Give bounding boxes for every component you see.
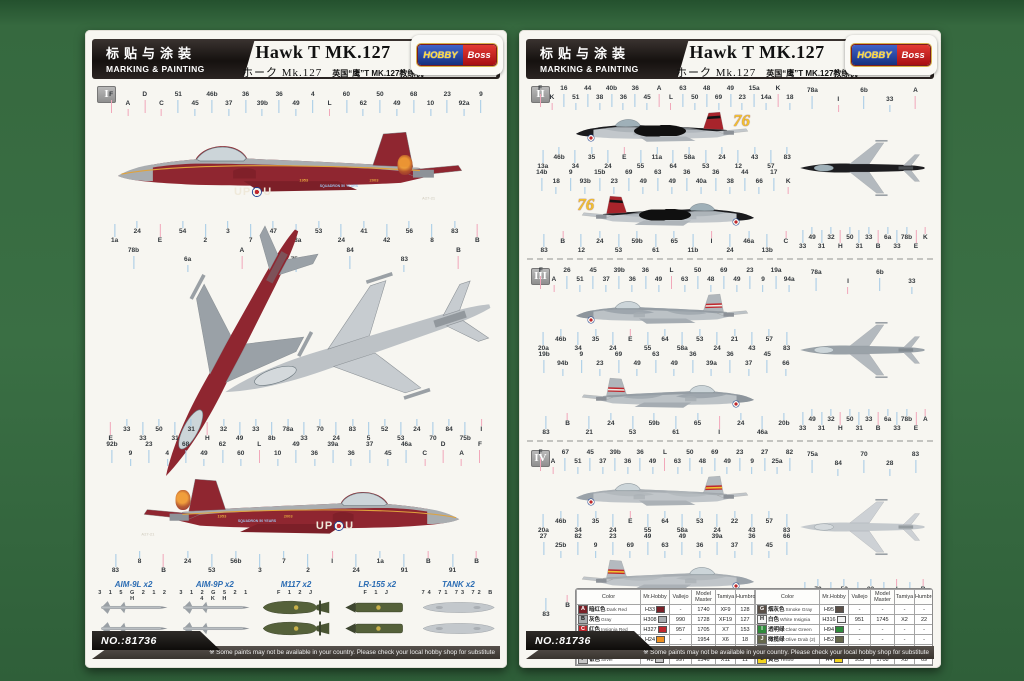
callout-61: 61: [652, 234, 659, 255]
callouts-bottom: E3333503131H3249338b78a33702483552532470…: [101, 418, 491, 442]
callout-36: 36: [726, 352, 733, 373]
callout-39a: 39a: [712, 534, 723, 555]
callout-60: 60: [237, 451, 244, 466]
panther-art: [634, 125, 686, 138]
callout-F: F: [539, 268, 543, 289]
callout-83: 83: [112, 554, 119, 575]
callout-49: 49: [727, 86, 734, 107]
callout-45: 45: [589, 268, 596, 289]
callout-13a: 13a: [537, 150, 548, 171]
callout-13b: 13b: [762, 234, 773, 255]
callout-64: 64: [661, 329, 668, 344]
aircraft-side-profile: [101, 468, 491, 556]
callout-I: I: [331, 551, 333, 566]
callout-46b: 46b: [553, 147, 564, 162]
callout-63: 63: [654, 170, 661, 191]
callout-63: 63: [652, 352, 659, 373]
weapon-group: TANK x2 74 71 73 72 B: [418, 580, 499, 646]
color-row: B灰色Gray H308 990 1728 XF19 127: [577, 615, 755, 625]
logo-hobby-text: HOBBY: [418, 45, 462, 65]
callout-A: A: [126, 101, 131, 116]
callout-50: 50: [694, 268, 701, 289]
callout-F: F: [478, 442, 482, 463]
callout-24: 24: [333, 422, 340, 443]
callout-16: 16: [560, 86, 567, 107]
callout-35: 35: [592, 511, 599, 526]
callout-4: 4: [165, 451, 169, 466]
callout-24: 24: [609, 514, 616, 535]
callout-B: B: [565, 595, 570, 610]
callout-34: 34: [572, 150, 579, 171]
kit-number-banner: NO.:81736: [92, 631, 220, 650]
callout-64: 64: [670, 150, 677, 171]
callout-46a: 46a: [401, 442, 412, 463]
callout-F: F: [538, 86, 542, 107]
callout-69: 69: [711, 450, 718, 471]
callout-49: 49: [393, 101, 400, 116]
callout-L: L: [257, 442, 261, 463]
callout-83: 83: [542, 598, 549, 619]
callout-24: 24: [609, 332, 616, 353]
callout-82: 82: [786, 450, 793, 471]
kit-subtitle-cn: 英国“鹰”T MK.127教练机: [766, 69, 857, 78]
callout-37: 37: [225, 101, 232, 116]
callout-14b: 14b: [536, 170, 547, 191]
callout-E: E: [628, 329, 632, 344]
scheme2-plan-view: 78aI6b33A 33493132H503133B6a3378bEK: [797, 88, 931, 250]
section-divider: [527, 258, 933, 260]
scheme1-side-view-port: 92b923468496260L10493639a36374546aCDAF U…: [101, 442, 491, 574]
callout-23: 23: [746, 268, 753, 289]
callout-5: 5: [367, 422, 371, 443]
callouts-bottom: 838B245356b372I241a91B91B: [101, 550, 491, 574]
callout-23: 23: [145, 442, 152, 463]
callout-A: A: [923, 409, 928, 424]
weapon-group: LR-155 x2 F 1 J: [337, 580, 418, 646]
marking-year-1953: 1953: [217, 513, 226, 518]
callout-36: 36: [689, 352, 696, 373]
col-humbrol: Humbrol: [736, 590, 755, 605]
callout-69: 69: [720, 268, 727, 289]
callout-57: 57: [767, 150, 774, 171]
tail-number-76: 76: [733, 111, 750, 131]
callout-54: 54: [179, 221, 186, 236]
marking-serial: A27-21: [422, 196, 435, 201]
footer-note: ※ Some paints may not be available in yo…: [643, 649, 934, 656]
callout-33: 33: [123, 419, 130, 434]
callout-36: 36: [642, 268, 649, 289]
callout-70: 70: [317, 419, 324, 434]
kit-number-banner: NO.:81736: [526, 631, 654, 650]
color-letter-chip: J: [757, 635, 767, 644]
callout-24: 24: [134, 221, 141, 236]
color-row: J橄榄绿Olive Drab (2) H52 - - - -: [756, 635, 934, 645]
marking-year-2003: 2003: [370, 178, 379, 183]
kit-subtitle-cn: 英国“鹰”T MK.127教练机: [332, 69, 423, 78]
callout-50: 50: [846, 409, 853, 424]
scheme2-side-port: 14b18993b15b23694963493640a3638446617K 7…: [533, 170, 797, 254]
kit-title: Hawk T MK.127: [676, 42, 838, 63]
callout-C: C: [783, 231, 788, 246]
callout-49: 49: [644, 534, 651, 555]
weapon-callouts: F 1 J: [337, 590, 418, 597]
callout-36: 36: [311, 451, 318, 466]
callout-D: D: [441, 442, 446, 463]
col-modelmaster: Model Master: [692, 590, 716, 605]
callout-52: 52: [381, 419, 388, 434]
color-row: G烟灰色Smoke Gray H95 - - - -: [756, 605, 934, 615]
hobbyboss-logo: HOBBY Boss: [845, 35, 937, 75]
callout-50: 50: [376, 92, 383, 113]
callout-56: 56: [406, 221, 413, 236]
callouts-top: FADC514546b373639b36494L6062504968102392…: [101, 92, 491, 118]
scheme3-side-starboard: FA2651453739b363649L635048694923919a94a …: [533, 268, 797, 352]
callout-44: 44: [741, 170, 748, 191]
callout-23: 23: [609, 534, 616, 555]
callout-D: D: [142, 92, 147, 113]
weapon-figure: [337, 597, 418, 641]
callout-62: 62: [360, 101, 367, 116]
callout-1a: 1a: [111, 224, 118, 245]
callout-9: 9: [479, 92, 483, 113]
callout-50: 50: [686, 450, 693, 471]
callout-41: 41: [360, 221, 367, 236]
callout-92b: 92b: [106, 442, 117, 463]
callout-B: B: [161, 554, 166, 575]
callout-64: 64: [661, 511, 668, 526]
sheet-page-1: 标贴与涂装 MARKING & PAINTING Hawk T MK.127 ホ…: [85, 30, 507, 668]
callout-33: 33: [252, 419, 259, 434]
callout-31: 31: [818, 412, 825, 433]
callout-36: 36: [348, 451, 355, 466]
callout-L: L: [663, 450, 667, 471]
callout-33: 33: [865, 409, 872, 424]
callout-59b: 59b: [632, 231, 643, 246]
section-divider: [527, 440, 933, 442]
callout-83: 83: [541, 234, 548, 255]
color-row: I透明绿Clear Green H94 - - - -: [756, 625, 934, 635]
callout-55: 55: [644, 332, 651, 353]
callout-46a: 46a: [757, 416, 768, 437]
callout-49: 49: [808, 409, 815, 424]
callout-50: 50: [155, 419, 162, 434]
callout-49: 49: [292, 101, 299, 116]
callout-33: 33: [865, 227, 872, 242]
callout-33: 33: [893, 412, 900, 433]
callout-36: 36: [712, 170, 719, 191]
callout-10: 10: [427, 101, 434, 116]
callout-78b: 78b: [128, 248, 139, 269]
callout-46b: 46b: [206, 92, 217, 113]
callout-21: 21: [586, 416, 593, 437]
callout-53: 53: [397, 422, 404, 443]
callout-91: 91: [401, 554, 408, 575]
callout-36: 36: [276, 92, 283, 113]
callout-34: 34: [575, 332, 582, 353]
callout-49: 49: [679, 534, 686, 555]
callout-39b: 39b: [614, 268, 625, 289]
header-cn-title: 标贴与涂装: [106, 43, 205, 62]
callout-48: 48: [703, 86, 710, 107]
raaf-roundel: [588, 499, 595, 506]
callout-27: 27: [761, 450, 768, 471]
callout-78a: 78a: [283, 419, 294, 434]
callout-L: L: [670, 268, 674, 289]
callout-45: 45: [587, 450, 594, 471]
col-mrhobby: Mr.Hobby: [641, 590, 670, 605]
marking-serial: A27-21: [141, 532, 154, 537]
color-row: H白色White Insignia H316 951 1745 X2 22: [756, 615, 934, 625]
callout-31: 31: [856, 412, 863, 433]
callout-39b: 39b: [257, 101, 268, 116]
callout-A: A: [657, 86, 662, 107]
weapon-label: AIM-9L x2: [93, 580, 174, 589]
callout-E: E: [158, 224, 162, 245]
header-en-title: MARKING & PAINTING: [106, 64, 205, 74]
callout-49: 49: [292, 442, 299, 463]
callout-49: 49: [808, 227, 815, 242]
callout-65: 65: [694, 413, 701, 428]
scan-background: { "doc": { "kit_no": "NO.:81736", "foote…: [0, 0, 1024, 681]
callout-B: B: [474, 551, 479, 566]
color-letter-chip: B: [578, 615, 588, 624]
logo-hobby-text: HOBBY: [852, 45, 896, 65]
col-tamiya: Tamiya: [716, 590, 736, 605]
callout-91: 91: [449, 554, 456, 575]
callout-84: 84: [445, 419, 452, 434]
callout-32: 32: [827, 409, 834, 424]
callout-B: B: [565, 413, 570, 428]
callout-83: 83: [783, 332, 790, 353]
callout-7: 7: [282, 551, 286, 566]
callout-78b: 78b: [901, 227, 912, 242]
callout-69: 69: [615, 352, 622, 373]
callout-53: 53: [615, 234, 622, 255]
callout-I: I: [718, 416, 720, 437]
callout-F: F: [538, 450, 542, 471]
callout-K: K: [776, 86, 781, 107]
callout-49: 49: [200, 451, 207, 466]
callout-24: 24: [713, 514, 720, 535]
callout-57: 57: [766, 511, 773, 526]
aircraft-side-profile: [101, 120, 491, 216]
callout-36: 36: [748, 534, 755, 555]
callout-42: 42: [383, 224, 390, 245]
callout-12: 12: [578, 234, 585, 255]
callout-C: C: [159, 101, 164, 116]
callout-23: 23: [736, 450, 743, 471]
callout-53: 53: [696, 329, 703, 344]
callout-15a: 15a: [749, 86, 760, 107]
callout-62: 62: [219, 442, 226, 463]
callout-17: 17: [770, 170, 777, 191]
callout-59b: 59b: [649, 413, 660, 428]
callout-37: 37: [366, 442, 373, 463]
callout-68: 68: [410, 92, 417, 113]
weapon-label: TANK x2: [418, 580, 499, 589]
scheme3-plan-view: 78aI6b33 33493132H503133B6a3378bEA: [797, 270, 931, 432]
callout-11a: 11a: [652, 147, 663, 162]
callout-E: E: [622, 147, 626, 162]
weapon-label: M117 x2: [255, 580, 336, 589]
callout-33: 33: [300, 422, 307, 443]
callouts-top: 92b923468496260L10493639a36374546aCDAF: [101, 442, 491, 468]
color-letter-chip: I: [757, 625, 767, 634]
raaf-roundel: [733, 401, 740, 408]
callout-36: 36: [242, 92, 249, 113]
callout-40b: 40b: [606, 86, 617, 107]
callout-23: 23: [444, 92, 451, 113]
callout-46b: 46b: [555, 329, 566, 344]
callout-31: 31: [818, 230, 825, 251]
color-letter-chip: A: [578, 605, 588, 614]
callout-19a: 19a: [771, 268, 782, 289]
callout-C: C: [422, 451, 427, 466]
callout-24: 24: [604, 150, 611, 171]
tail-scorpion-art: [398, 155, 413, 175]
callout-68: 68: [182, 442, 189, 463]
callout-11b: 11b: [687, 234, 698, 255]
callout-24: 24: [713, 332, 720, 353]
scheme4-plan-view: 75a84702883 24705352248384I75bB: [797, 452, 931, 602]
callout-36: 36: [683, 170, 690, 191]
kit-subtitle-jp: ホーク Mk.127: [242, 67, 322, 79]
callout-B: B: [426, 551, 431, 566]
callout-32: 32: [220, 419, 227, 434]
callout-8b: 8b: [268, 422, 276, 443]
callout-51: 51: [175, 92, 182, 113]
col-color: Color: [577, 590, 641, 605]
header-cn-title: 标贴与涂装: [540, 43, 639, 62]
callout-21: 21: [731, 329, 738, 344]
marking-year-1953: 1953: [299, 178, 308, 183]
callout-15b: 15b: [594, 170, 605, 191]
callout-45: 45: [764, 352, 771, 373]
scheme4-side-starboard: FA6751453739b363649L63504869492392725a82…: [533, 450, 797, 534]
callout-39b: 39b: [610, 450, 621, 471]
callout-E: E: [914, 412, 918, 433]
callout-83: 83: [783, 514, 790, 535]
callout-39a: 39a: [327, 442, 338, 463]
callout-E: E: [628, 511, 632, 526]
callout-3: 3: [258, 554, 262, 575]
callout-36: 36: [636, 450, 643, 471]
callout-35: 35: [592, 329, 599, 344]
callout-6a: 6a: [884, 227, 891, 242]
callout-E: E: [914, 230, 918, 251]
callout-83: 83: [542, 416, 549, 437]
callout-B: B: [560, 231, 565, 246]
callout-6a: 6a: [884, 409, 891, 424]
callout-E: E: [108, 422, 112, 443]
scheme3-side-port: 19b94b923694963493639a36374566 83B212453…: [533, 352, 797, 436]
callout-34: 34: [575, 514, 582, 535]
callout-24: 24: [718, 147, 725, 162]
callout-20a: 20a: [538, 332, 549, 353]
callout-44: 44: [584, 86, 591, 107]
scheme2-side-starboard: FK1651443840b363645AL63504869492315a14aK…: [533, 86, 797, 170]
header-en-title: MARKING & PAINTING: [540, 64, 639, 74]
callout-B: B: [876, 412, 881, 433]
callout-H: H: [838, 230, 843, 251]
callout-24: 24: [607, 413, 614, 428]
weapon-figure: [255, 597, 336, 641]
callout-20a: 20a: [538, 514, 549, 535]
callout-24: 24: [737, 413, 744, 428]
callout-53: 53: [696, 511, 703, 526]
tail-scorpion-art: [175, 490, 190, 510]
callout-46a: 46a: [743, 231, 754, 246]
callout-36: 36: [632, 86, 639, 107]
callout-53: 53: [702, 150, 709, 171]
callout-24: 24: [726, 234, 733, 255]
callout-2: 2: [306, 554, 310, 575]
callout-H: H: [838, 412, 843, 433]
callout-50: 50: [846, 227, 853, 242]
callout-61: 61: [672, 416, 679, 437]
callout-1a: 1a: [377, 551, 384, 566]
callout-92a: 92a: [459, 101, 470, 116]
kit-subtitle: ホーク Mk.127英国“鹰”T MK.127教练机: [242, 64, 404, 80]
callout-56b: 56b: [230, 551, 241, 566]
callout-58a: 58a: [684, 147, 695, 162]
callout-19b: 19b: [539, 352, 550, 373]
callout-A: A: [459, 451, 464, 466]
kit-subtitle-jp: ホーク Mk.127: [676, 67, 756, 79]
callout-66: 66: [783, 534, 790, 555]
callout-I: I: [480, 419, 482, 434]
callout-57: 57: [766, 329, 773, 344]
callout-53: 53: [208, 554, 215, 575]
callout-31: 31: [172, 422, 179, 443]
callout-82: 82: [575, 534, 582, 555]
callout-K: K: [923, 227, 928, 242]
callout-32: 32: [827, 227, 834, 242]
weapon-label: AIM-9P x2: [174, 580, 255, 589]
weapon-group: M117 x2 F 1 2 J: [255, 580, 336, 646]
callout-31: 31: [856, 230, 863, 251]
callout-8: 8: [138, 551, 142, 566]
page1-header: 标贴与涂装 MARKING & PAINTING Hawk T MK.127 ホ…: [92, 39, 500, 79]
callout-B: B: [876, 230, 881, 251]
raaf-roundel: [334, 521, 344, 531]
callout-65: 65: [671, 231, 678, 246]
callout-I: I: [711, 231, 713, 246]
callout-24: 24: [184, 551, 191, 566]
callout-22: 22: [731, 511, 738, 526]
page2-header: 标贴与涂装 MARKING & PAINTING Hawk T MK.127 ホ…: [526, 39, 934, 79]
callout-33: 33: [799, 412, 806, 433]
callout-F: F: [109, 92, 113, 113]
callout-20b: 20b: [778, 413, 789, 428]
callout-70: 70: [429, 422, 436, 443]
callout-60: 60: [343, 92, 350, 113]
callout-H: H: [205, 422, 210, 443]
weapon-callouts: 3 1 2 G 5 2 1 4 K H: [174, 590, 255, 597]
weapon-callouts: 74 71 73 72 B: [418, 590, 499, 597]
callout-9: 9: [580, 352, 584, 373]
marking-squadron-text: SQUADRON 50 YEARS: [320, 184, 358, 188]
callout-27: 27: [540, 534, 547, 555]
callout-31: 31: [188, 419, 195, 434]
footer-note: ※ Some paints may not be available in yo…: [209, 649, 500, 656]
callout-33: 33: [799, 230, 806, 251]
squadron-code: UPU: [316, 520, 354, 532]
callout-58a: 58a: [677, 332, 688, 353]
panther-art: [639, 209, 691, 222]
callout-53: 53: [629, 416, 636, 437]
callout-33: 33: [893, 230, 900, 251]
